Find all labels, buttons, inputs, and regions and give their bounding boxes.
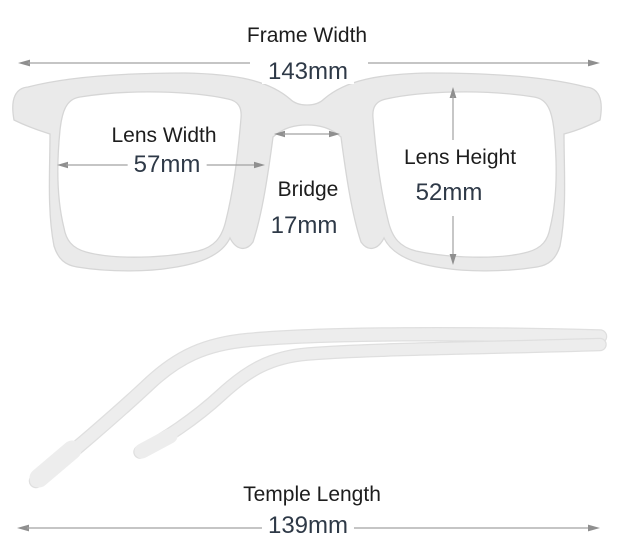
lens-height-arrow	[450, 87, 457, 265]
temple-arm-front-outline	[140, 345, 600, 453]
frame-width-value: 143mm	[262, 60, 354, 84]
temple-arm-back-tip	[39, 450, 72, 478]
bridge-arrow	[274, 131, 340, 137]
lens-height-label: Lens Height	[398, 147, 522, 168]
temple-arm-front-tip	[142, 436, 170, 451]
frame-width-label: Frame Width	[241, 25, 373, 46]
bridge-value: 17mm	[265, 214, 344, 238]
glasses-measurement-diagram: Frame Width 143mm Lens Width 57mm Bridge…	[0, 0, 636, 559]
bridge-label: Bridge	[272, 179, 345, 200]
temple-length-label: Temple Length	[237, 484, 387, 505]
temple-length-value: 139mm	[262, 514, 354, 538]
glasses-front-frame	[13, 73, 601, 271]
lens-width-label: Lens Width	[105, 125, 222, 146]
temple-arms-illustration	[36, 334, 600, 481]
lens-height-value: 52mm	[410, 181, 489, 205]
lens-width-value: 57mm	[128, 153, 207, 177]
